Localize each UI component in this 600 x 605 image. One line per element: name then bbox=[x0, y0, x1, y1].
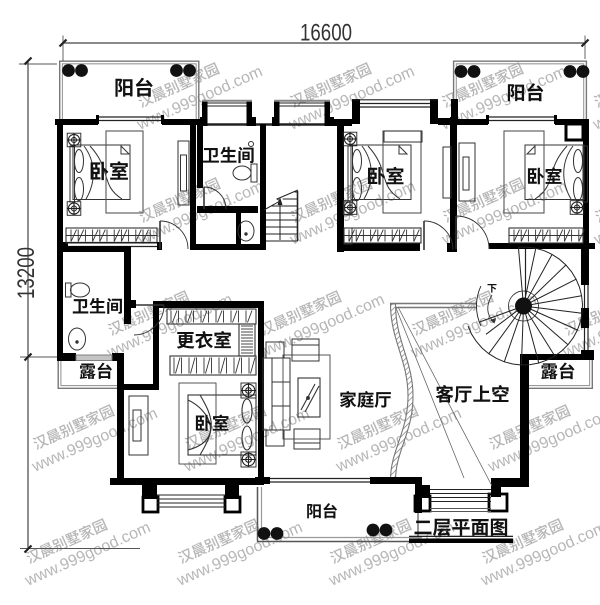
svg-text:16600: 16600 bbox=[300, 19, 352, 46]
svg-text:13200: 13200 bbox=[13, 247, 40, 299]
